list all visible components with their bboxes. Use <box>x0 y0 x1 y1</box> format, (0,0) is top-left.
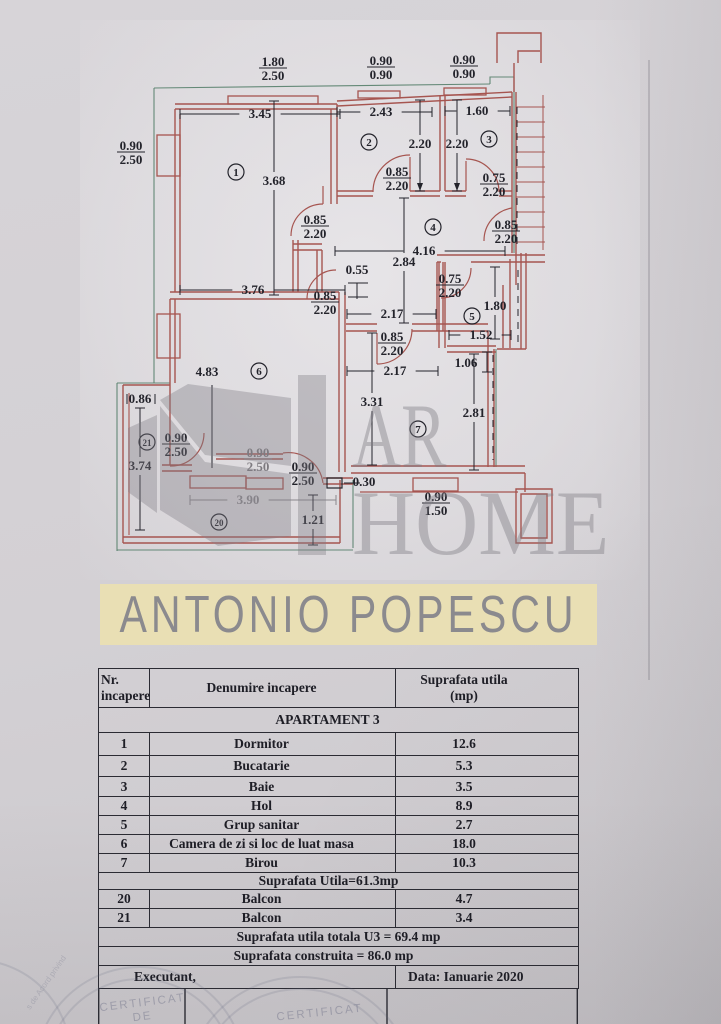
svg-text:CERTIFICAT: CERTIFICAT <box>276 1003 363 1024</box>
svg-text:DE: DE <box>132 1010 153 1024</box>
